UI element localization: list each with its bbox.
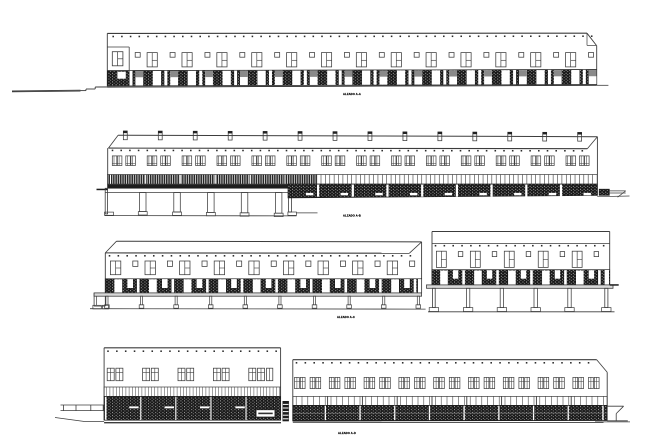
svg-text:ALZADO A-C: ALZADO A-C <box>337 315 355 319</box>
svg-text:ALZADO A-A: ALZADO A-A <box>343 92 361 96</box>
svg-text:ALZADO A-B: ALZADO A-B <box>343 213 361 217</box>
svg-text:ALZADO A-D: ALZADO A-D <box>338 431 356 435</box>
